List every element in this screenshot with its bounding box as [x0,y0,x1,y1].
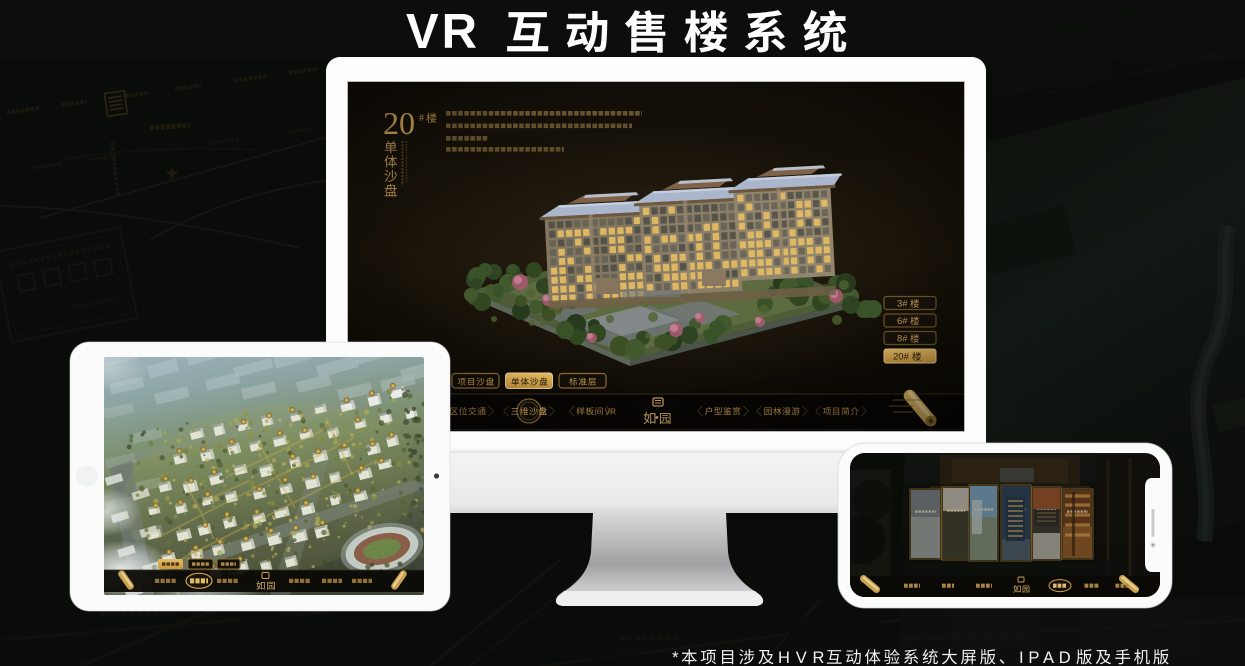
svg-text:IPAD: IPAD [1019,649,1076,666]
svg-text:HVR: HVR [778,649,830,666]
svg-text:VR: VR [406,5,480,59]
svg-text:*: * [672,648,679,666]
